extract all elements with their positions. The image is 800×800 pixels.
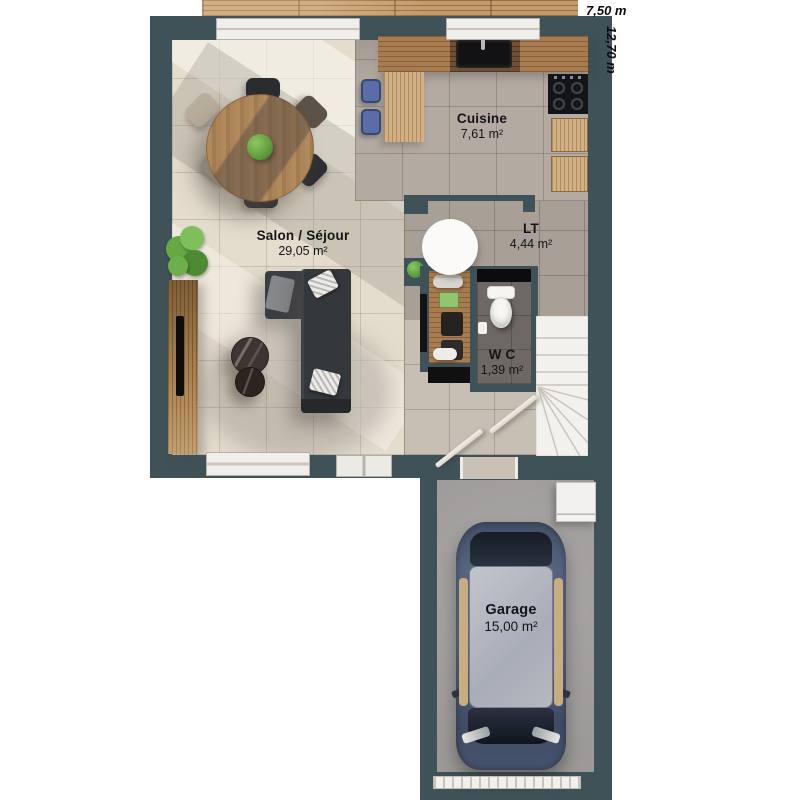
room-label-salon: Salon / Séjour 29,05 m² — [257, 228, 350, 258]
cooktop-burner — [553, 82, 565, 94]
tv — [176, 316, 184, 396]
wc-name: W C — [481, 347, 523, 362]
car-rear-window — [470, 532, 552, 566]
towel-stack — [433, 275, 463, 288]
cuisine-area: 7,61 m² — [457, 127, 507, 141]
cooktop-burner — [553, 98, 565, 110]
floor-plant — [166, 226, 210, 278]
plant-foliage — [180, 226, 204, 250]
toilet-bowl — [490, 297, 512, 328]
room-label-entry: LT 4,44 m² — [510, 221, 552, 251]
window-top-right — [446, 18, 540, 40]
garage-door — [433, 776, 581, 789]
entry-name: LT — [510, 221, 552, 236]
room-label-garage: Garage 15,00 m² — [484, 602, 537, 634]
soap-box — [439, 292, 459, 308]
cooktop — [548, 74, 588, 114]
car: Garage 15,00 m² — [456, 522, 566, 770]
boiler — [556, 482, 596, 522]
partition-stub-right — [523, 195, 535, 212]
door-mat — [428, 367, 470, 383]
bar-stool — [361, 79, 381, 103]
vanity-basin — [441, 312, 463, 336]
window-bottom — [206, 452, 310, 476]
garage-area: 15,00 m² — [484, 619, 537, 634]
partition-stub-left — [404, 195, 428, 214]
floor-plan: 7,50 m 12,70 m — [0, 0, 800, 800]
garage-name: Garage — [484, 602, 537, 618]
cooktop-burner — [571, 98, 583, 110]
cooktop-controls — [554, 76, 584, 79]
floor-shadow-patch — [202, 320, 392, 455]
floor-junction-line — [404, 320, 405, 455]
car-seat — [554, 578, 563, 706]
salon-area: 29,05 m² — [257, 244, 350, 258]
towel-roll — [433, 348, 457, 360]
bar-stool — [361, 109, 381, 135]
living-side-niche — [420, 294, 427, 352]
room-label-wc: W C 1,39 m² — [481, 347, 523, 377]
toilet-paper-holder — [478, 322, 487, 334]
dimension-depth-label: 12,70 m — [604, 26, 619, 74]
window-top-left — [216, 18, 360, 40]
garage-passage-doorway — [460, 457, 518, 479]
room-label-cuisine: Cuisine 7,61 m² — [457, 111, 507, 141]
cuisine-name: Cuisine — [457, 111, 507, 126]
wc-area: 1,39 m² — [481, 363, 523, 377]
car-seat — [459, 578, 468, 706]
kitchen-cabinet — [551, 118, 588, 152]
cooktop-burner — [571, 82, 583, 94]
wc-cistern — [477, 269, 531, 282]
car-roof — [469, 566, 553, 708]
salon-name: Salon / Séjour — [257, 228, 350, 243]
terrace-door — [336, 455, 392, 477]
dimension-width-label: 7,50 m — [586, 3, 626, 18]
staircase — [536, 316, 588, 456]
coffee-table-small — [235, 367, 265, 397]
entry-area: 4,44 m² — [510, 237, 552, 251]
table-plant — [247, 134, 273, 160]
kitchen-peninsula — [384, 72, 424, 142]
entry-rug — [422, 219, 478, 275]
kitchen-cabinet — [551, 156, 588, 192]
sofa-armrest — [301, 399, 351, 413]
plant-foliage — [168, 256, 188, 276]
